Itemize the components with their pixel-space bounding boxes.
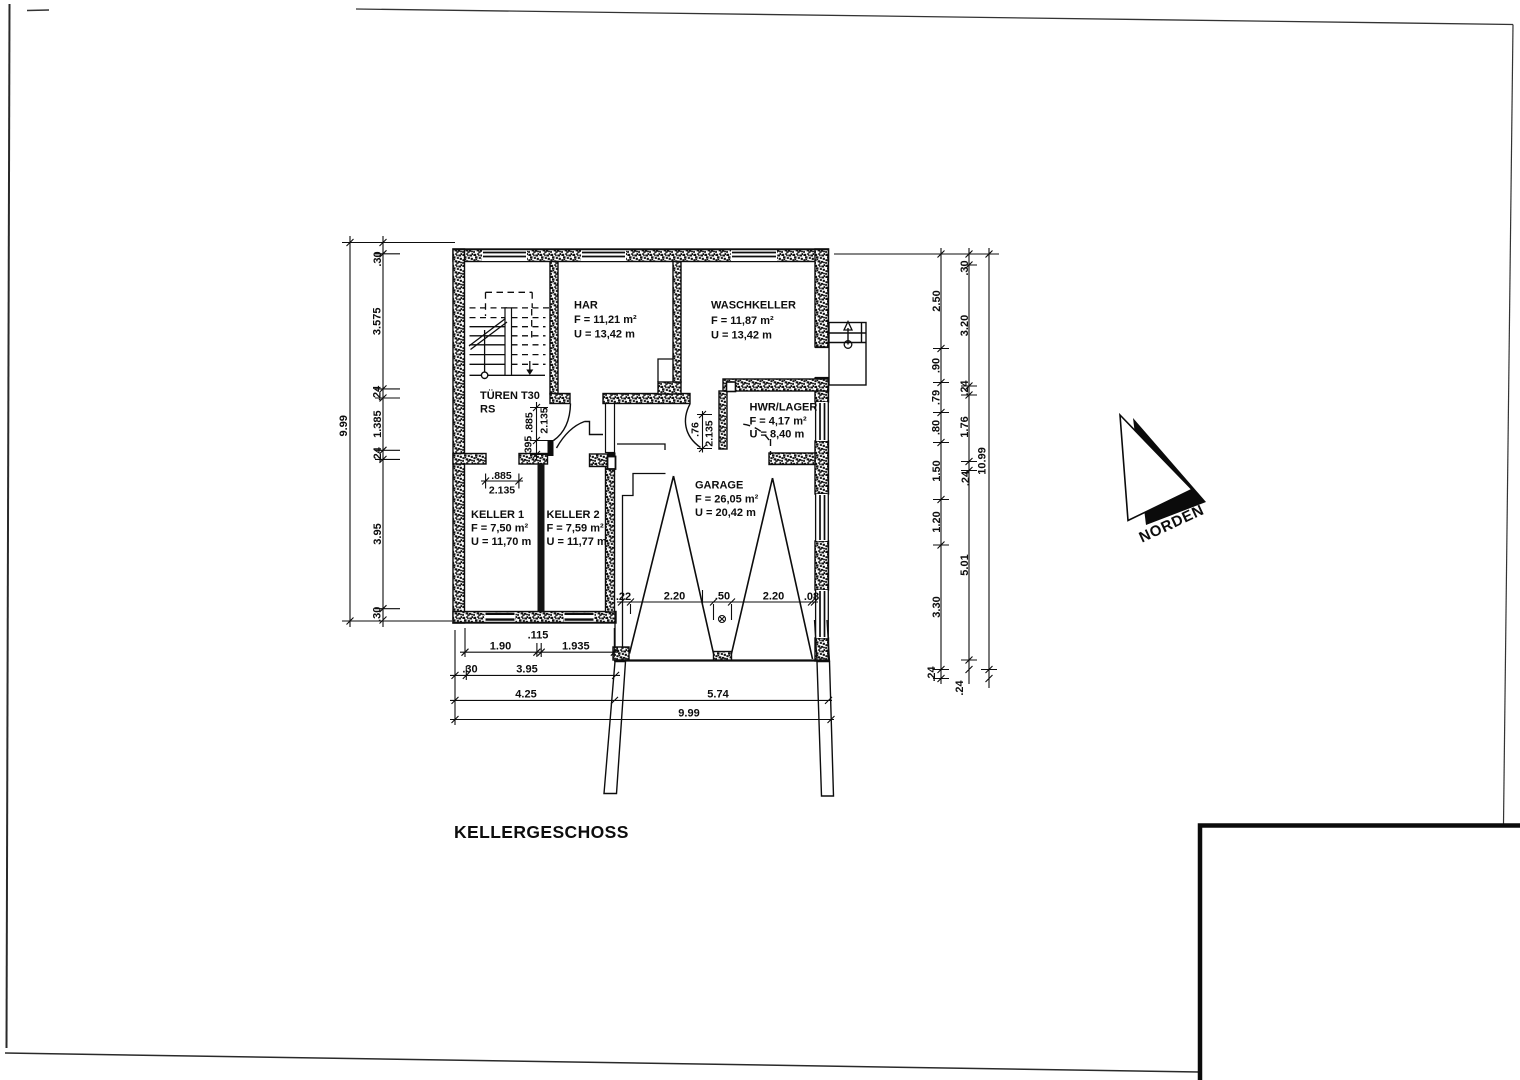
svg-text:F = 7,59 m²: F = 7,59 m² [547, 522, 605, 534]
svg-text:RS: RS [480, 404, 495, 416]
svg-text:F = 11,87 m²: F = 11,87 m² [711, 315, 774, 327]
svg-text:2.135: 2.135 [704, 420, 716, 446]
svg-text:.24: .24 [960, 470, 972, 486]
svg-text:10.99: 10.99 [977, 447, 989, 475]
svg-text:HAR: HAR [574, 300, 598, 312]
svg-text:F = 4,17 m²: F = 4,17 m² [750, 415, 808, 427]
svg-text:.90: .90 [931, 358, 943, 373]
svg-text:.30: .30 [372, 251, 384, 266]
svg-text:2.50: 2.50 [931, 290, 943, 311]
svg-text:U = 20,42 m: U = 20,42 m [695, 507, 756, 519]
svg-text:U = 13,42 m: U = 13,42 m [711, 329, 772, 341]
svg-text:KELLER 1: KELLER 1 [471, 509, 524, 521]
svg-text:9.99: 9.99 [678, 708, 699, 720]
svg-text:.395: .395 [523, 436, 535, 457]
svg-text:1.935: 1.935 [562, 641, 590, 653]
svg-text:1.385: 1.385 [372, 410, 384, 438]
svg-text:.22: .22 [616, 591, 631, 603]
svg-text:U = 11,77 m: U = 11,77 m [547, 536, 607, 548]
svg-text:3.95: 3.95 [372, 523, 384, 544]
svg-text:GARAGE: GARAGE [695, 480, 743, 492]
svg-text:5.74: 5.74 [707, 689, 729, 701]
svg-text:HWR/LAGER: HWR/LAGER [750, 402, 818, 414]
svg-text:.24: .24 [372, 385, 384, 401]
svg-text:.30: .30 [372, 607, 384, 622]
svg-text:.76: .76 [690, 422, 702, 437]
svg-text:.08: .08 [804, 591, 819, 603]
svg-text:.24: .24 [372, 446, 384, 462]
svg-text:U = 11,70 m: U = 11,70 m [471, 536, 531, 548]
svg-text:.885: .885 [524, 412, 536, 433]
svg-text:3.95: 3.95 [516, 664, 537, 676]
svg-text:.50: .50 [715, 591, 730, 603]
svg-text:2.135: 2.135 [539, 407, 551, 433]
svg-text:.24: .24 [954, 679, 966, 695]
svg-text:.885: .885 [491, 470, 512, 482]
svg-text:U = 13,42 m: U = 13,42 m [574, 328, 635, 340]
svg-text:U = 8,40 m: U = 8,40 m [750, 429, 805, 441]
svg-text:2.20: 2.20 [664, 591, 685, 603]
svg-text:3.30: 3.30 [931, 596, 943, 617]
svg-text:3.20: 3.20 [959, 315, 971, 336]
svg-text:.24: .24 [926, 665, 938, 681]
svg-text:5.01: 5.01 [959, 554, 971, 575]
svg-text:F = 26,05 m²: F = 26,05 m² [695, 494, 759, 506]
svg-text:9.99: 9.99 [338, 415, 350, 436]
svg-text:2.20: 2.20 [763, 591, 784, 603]
svg-text:3.575: 3.575 [372, 308, 384, 336]
svg-text:1.20: 1.20 [931, 511, 943, 532]
svg-text:KELLERGESCHOSS: KELLERGESCHOSS [454, 822, 629, 842]
svg-text:.115: .115 [528, 630, 549, 642]
svg-text:.30: .30 [959, 260, 971, 275]
svg-text:1.76: 1.76 [959, 416, 971, 437]
svg-text:WASCHKELLER: WASCHKELLER [711, 300, 796, 312]
svg-text:1.90: 1.90 [490, 641, 511, 653]
svg-text:F = 11,21 m²: F = 11,21 m² [574, 314, 637, 326]
svg-text:TÜREN T30: TÜREN T30 [480, 389, 540, 402]
svg-text:2.135: 2.135 [489, 485, 515, 497]
svg-text:F = 7,50 m²: F = 7,50 m² [471, 522, 529, 534]
svg-text:1.50: 1.50 [931, 460, 943, 481]
svg-text:.30: .30 [462, 664, 477, 676]
svg-text:4.25: 4.25 [515, 689, 536, 701]
svg-text:.24: .24 [959, 379, 971, 395]
svg-text:.80: .80 [931, 420, 943, 435]
svg-text:.79: .79 [931, 390, 943, 405]
svg-text:KELLER 2: KELLER 2 [547, 509, 600, 521]
